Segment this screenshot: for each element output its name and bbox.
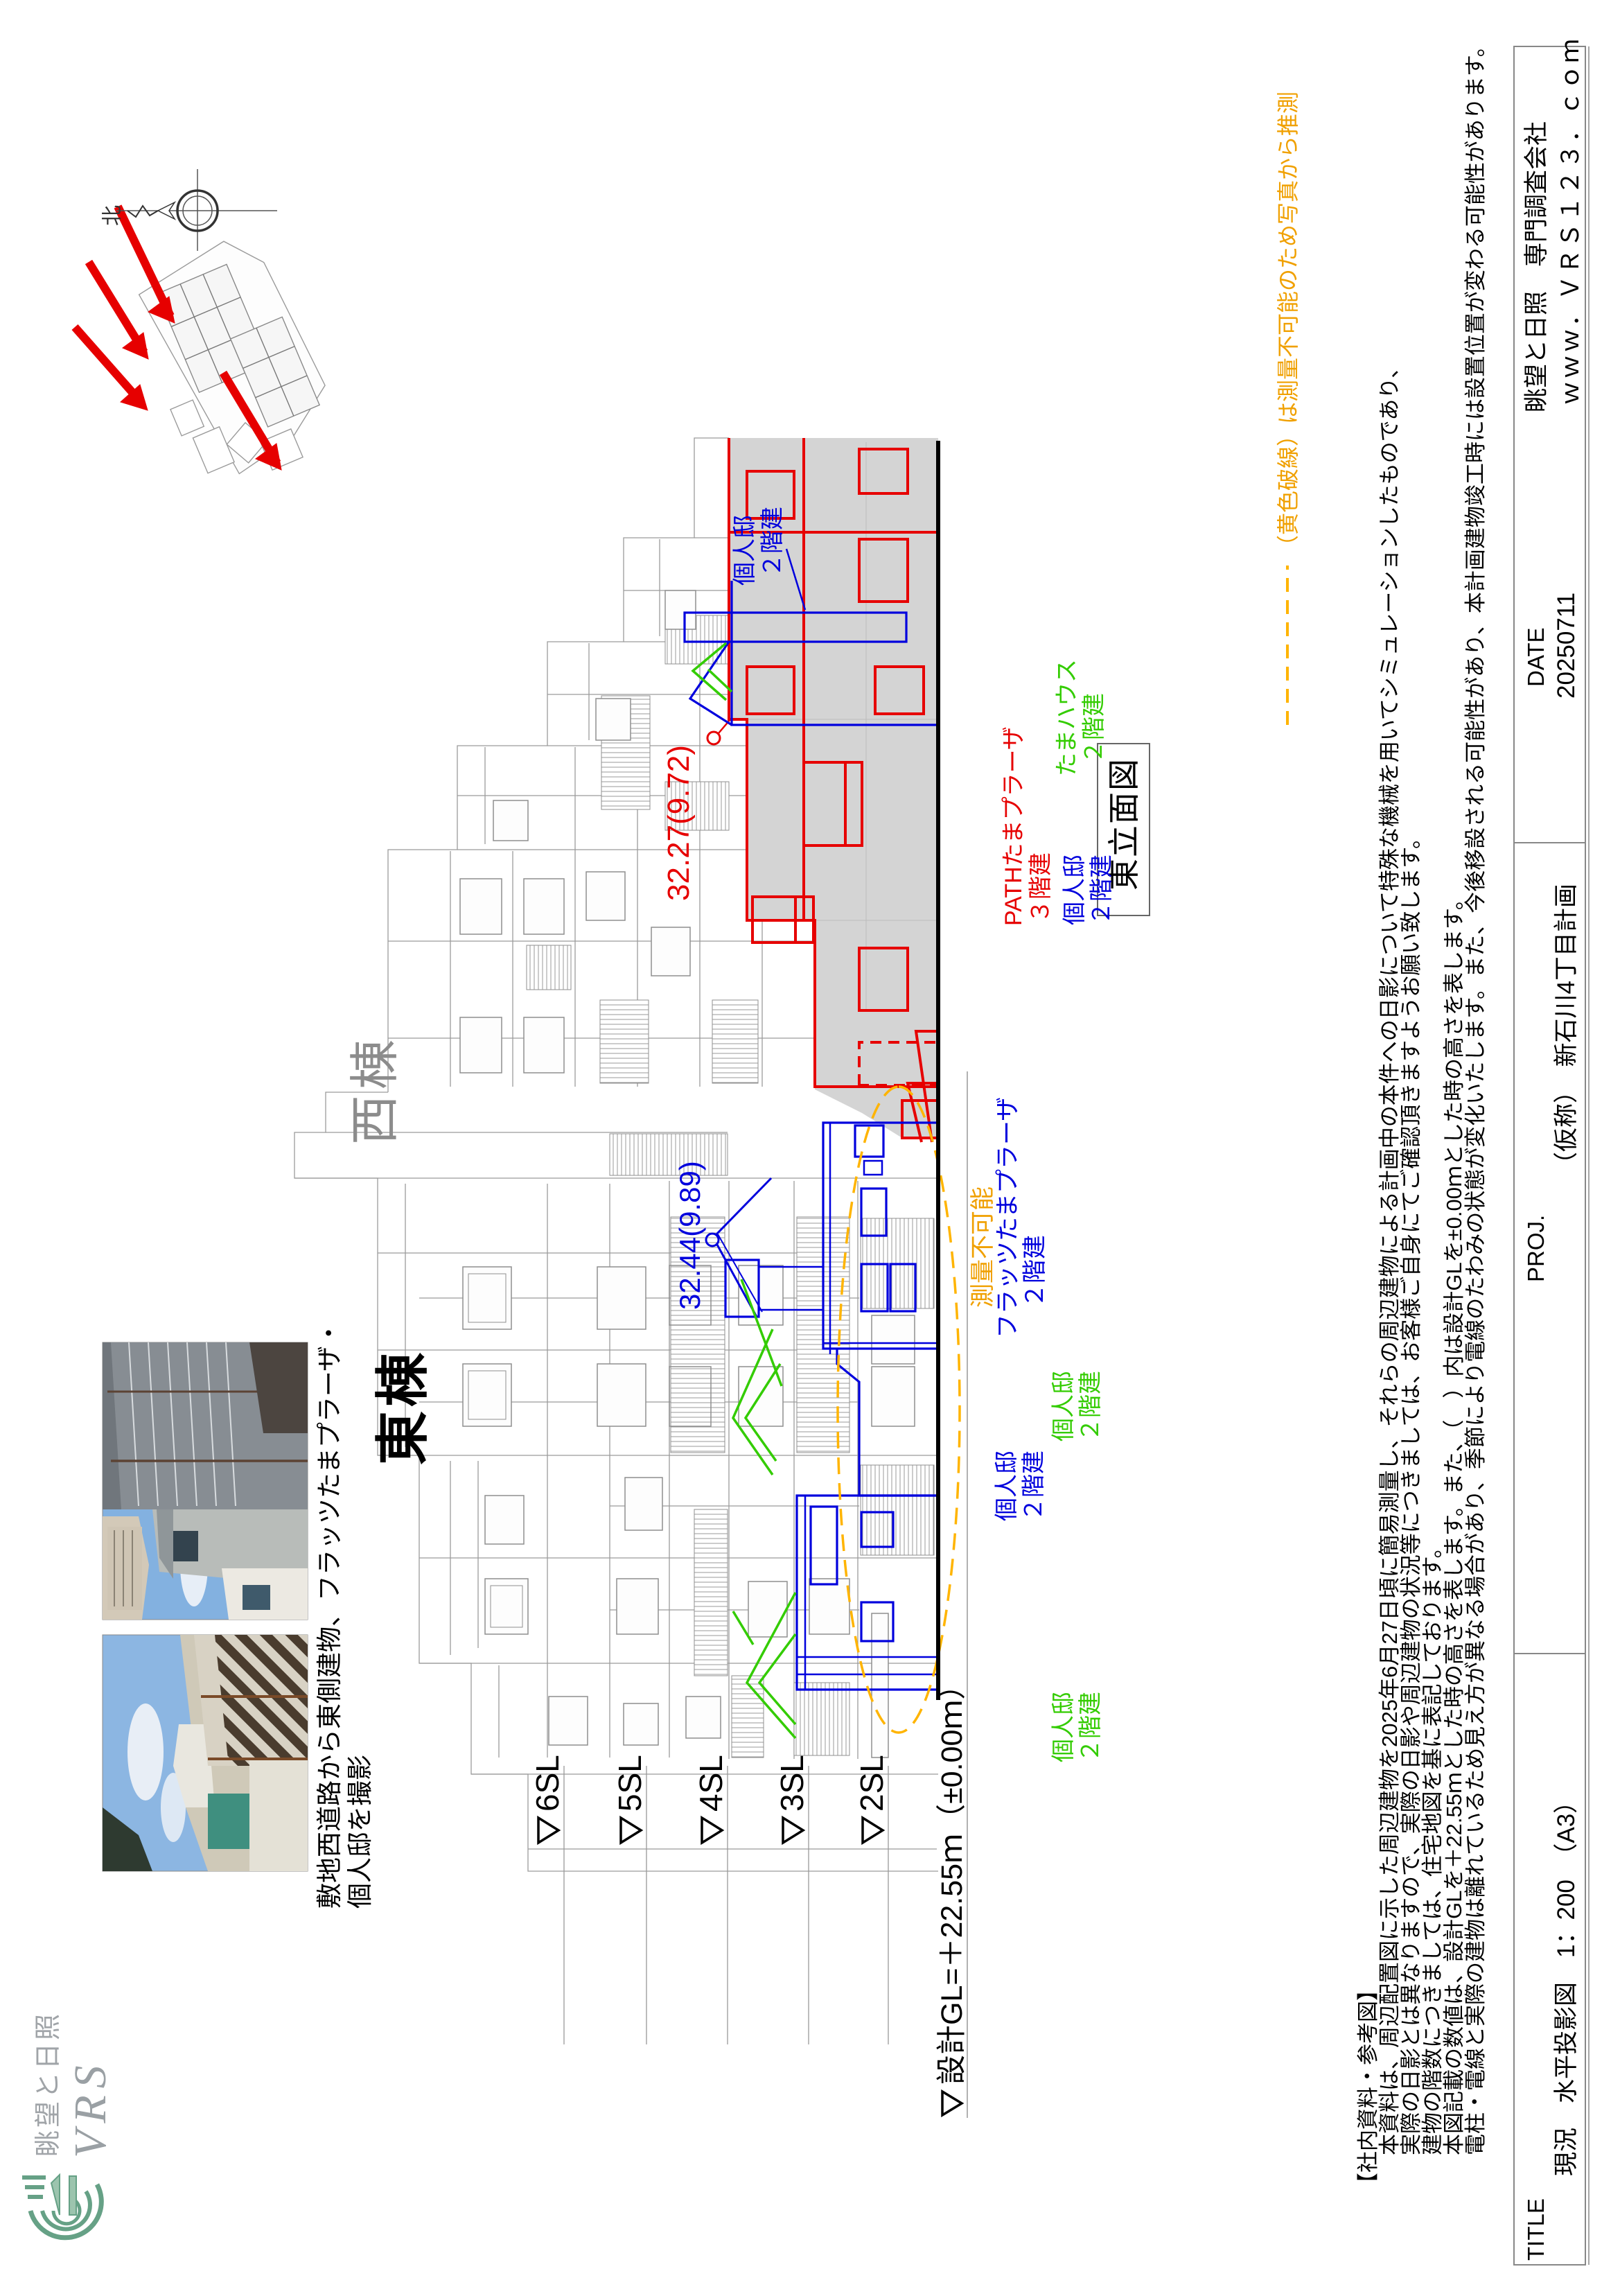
svg-text:東棟: 東棟 bbox=[372, 1349, 433, 1465]
svg-text:TITLE: TITLE bbox=[1523, 2198, 1549, 2261]
svg-text:実際の日影とは異なりますので、実際の日影や周辺建物の状況等に: 実際の日影とは異なりますので、実際の日影や周辺建物の状況等につきましては、お客様… bbox=[1399, 827, 1423, 2155]
svg-text:北: 北 bbox=[101, 205, 124, 226]
svg-text:ｗｗｗ．ＶＲＳ１２３．ｃｏｍ: ｗｗｗ．ＶＲＳ１２３．ｃｏｍ bbox=[1557, 37, 1584, 405]
svg-text:6SL: 6SL bbox=[529, 1755, 565, 1812]
svg-text:（黄色破線）は測量不可能のため写真から推測: （黄色破線）は測量不可能のため写真から推測 bbox=[1276, 91, 1301, 557]
svg-text:たまハウス: たまハウス bbox=[1054, 659, 1080, 776]
svg-text:フラッツたまプラーザ: フラッツたまプラーザ bbox=[994, 1097, 1021, 1338]
svg-text:本資料は、周辺配置図に示した周辺建物を2025年6月27日頃: 本資料は、周辺配置図に示した周辺建物を2025年6月27日頃に簡易測量し、それら… bbox=[1377, 357, 1402, 2155]
svg-text:4SL: 4SL bbox=[693, 1755, 729, 1812]
svg-text:DATE: DATE bbox=[1523, 627, 1549, 687]
svg-text:本図記載の数値は、設計GLを＋22.55ｍとした時の高さを表: 本図記載の数値は、設計GLを＋22.55ｍとした時の高さを表します。また、（ ）… bbox=[1442, 888, 1466, 2155]
svg-text:設計GL=＋22.55ｍ（±0.00ｍ）: 設計GL=＋22.55ｍ（±0.00ｍ） bbox=[935, 1670, 969, 2085]
svg-text:5SL: 5SL bbox=[612, 1755, 648, 1812]
svg-text:２階建: ２階建 bbox=[1021, 1451, 1047, 1521]
svg-text:現況 水平投影図 1：200 （A3）: 現況 水平投影図 1：200 （A3） bbox=[1553, 1789, 1580, 2176]
svg-text:眺望と日照: 眺望と日照 bbox=[34, 2011, 63, 2157]
svg-text:32.27(9.72): 32.27(9.72) bbox=[662, 745, 696, 901]
svg-text:個人邸: 個人邸 bbox=[994, 1451, 1020, 1521]
svg-text:【社内資料・参考図】: 【社内資料・参考図】 bbox=[1356, 1979, 1380, 2194]
svg-text:VRS: VRS bbox=[65, 2058, 116, 2158]
svg-text:個人邸: 個人邸 bbox=[1050, 1371, 1077, 1441]
svg-text:個人邸を撮影: 個人邸を撮影 bbox=[346, 1755, 374, 1909]
svg-text:２階建: ２階建 bbox=[1089, 855, 1115, 925]
svg-text:2SL: 2SL bbox=[854, 1755, 890, 1812]
svg-text:２階建: ２階建 bbox=[1081, 693, 1107, 764]
svg-text:西棟: 西棟 bbox=[348, 1034, 403, 1145]
svg-text:建物の階数につきましては、住宅地図を基に表記しております。: 建物の階数につきましては、住宅地図を基に表記しております。 bbox=[1420, 1537, 1445, 2156]
svg-text:敷地西道路から東側建物、フラッツたまプラーザ・: 敷地西道路から東側建物、フラッツたまプラーザ・ bbox=[315, 1320, 344, 1909]
svg-text:個人邸: 個人邸 bbox=[1062, 855, 1088, 925]
svg-text:２階建: ２階建 bbox=[1077, 1692, 1104, 1762]
svg-text:２階建: ２階建 bbox=[1077, 1371, 1104, 1441]
svg-text:20250711: 20250711 bbox=[1553, 593, 1580, 699]
svg-text:３階建: ３階建 bbox=[1028, 852, 1054, 923]
svg-text:（仮称） 新石川4丁目計画: （仮称） 新石川4丁目計画 bbox=[1553, 884, 1580, 1176]
svg-text:眺望と日照 専門調査会社: 眺望と日照 専門調査会社 bbox=[1523, 121, 1550, 412]
svg-text:PATHたまプラーザ: PATHたまプラーザ bbox=[1001, 726, 1027, 926]
svg-text:２階建: ２階建 bbox=[1021, 1235, 1048, 1308]
svg-text:個人邸: 個人邸 bbox=[1050, 1692, 1077, 1762]
svg-text:3SL: 3SL bbox=[774, 1755, 810, 1812]
svg-text:個人邸: 個人邸 bbox=[732, 515, 758, 586]
svg-text:32.44(9.89): 32.44(9.89) bbox=[673, 1161, 706, 1310]
svg-text:測量不可能: 測量不可能 bbox=[969, 1186, 996, 1308]
svg-text:２階建: ２階建 bbox=[759, 507, 786, 577]
svg-text:電柱・電線と実際の建物は離れているため見え方が異なる場合があ: 電柱・電線と実際の建物は離れているため見え方が異なる場合があり、季節により電線の… bbox=[1463, 35, 1488, 2155]
svg-text:PROJ.: PROJ. bbox=[1523, 1215, 1549, 1282]
